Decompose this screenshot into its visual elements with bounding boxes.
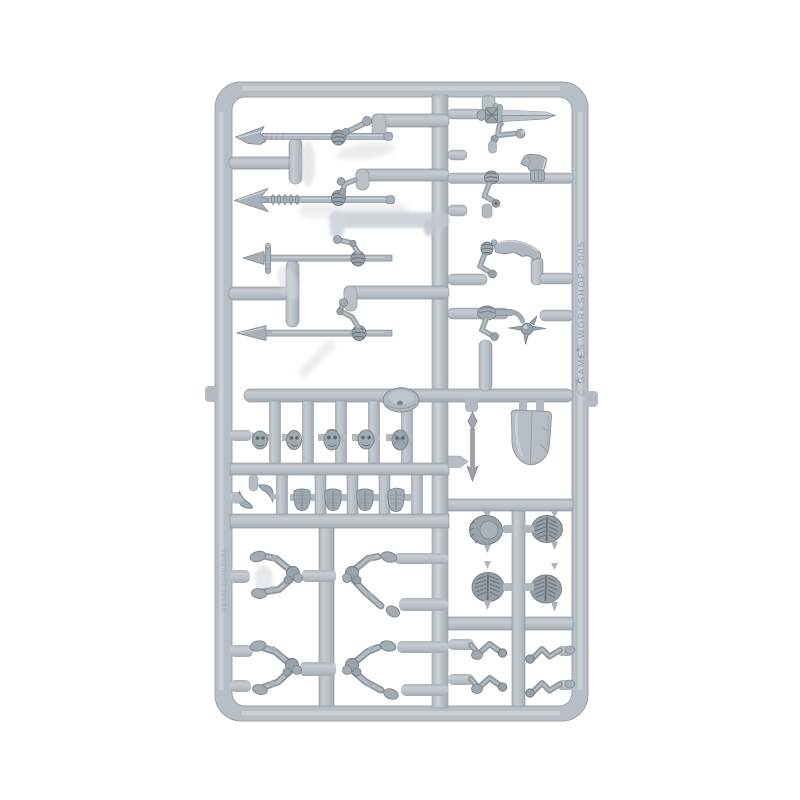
svg-text:9938020703001: 9938020703001 <box>220 547 229 612</box>
svg-text:© GAMES WORKSHOP 2005: © GAMES WORKSHOP 2005 <box>577 240 587 396</box>
